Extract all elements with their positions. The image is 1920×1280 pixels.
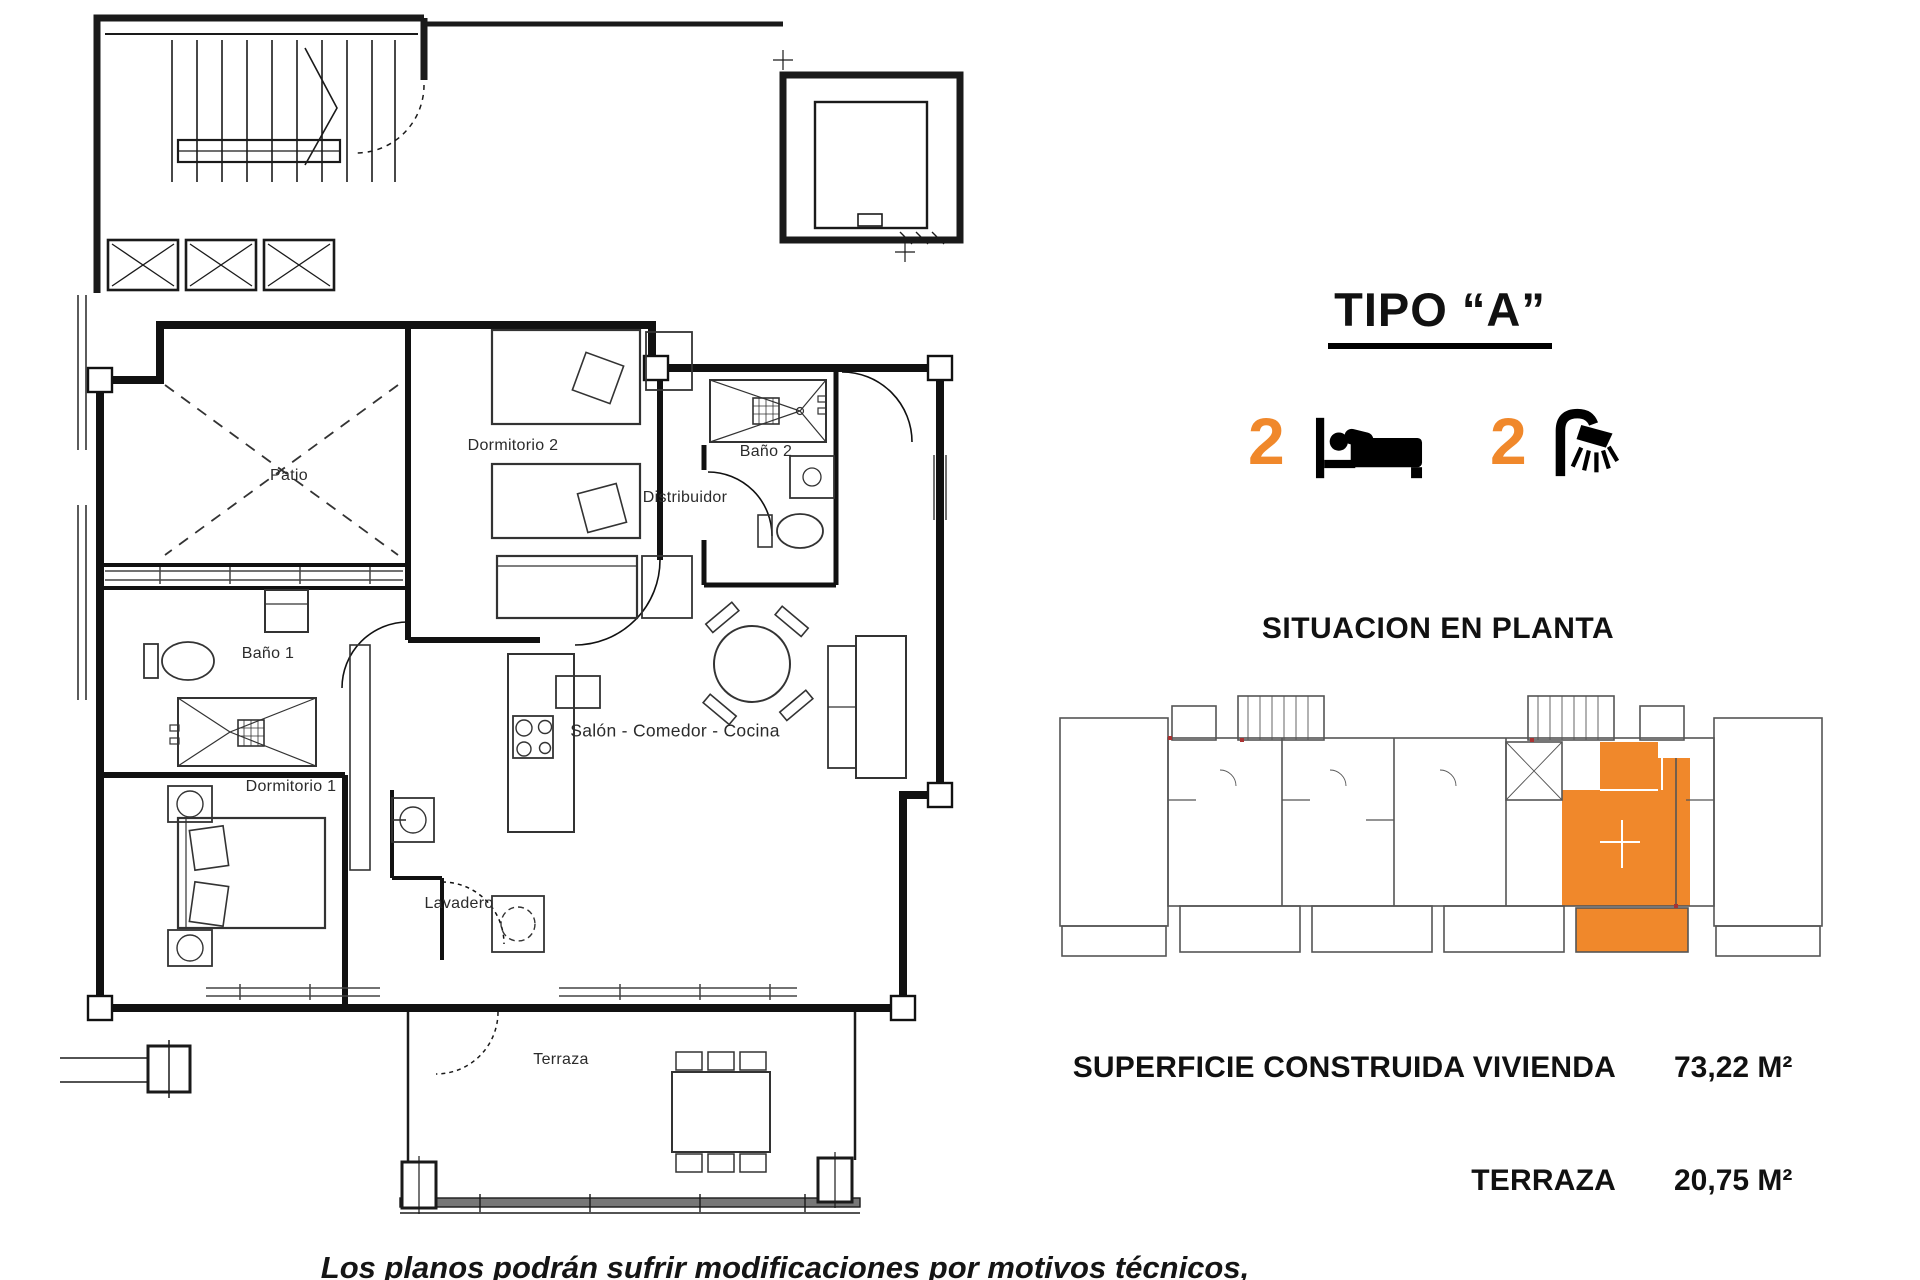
disclaimer-text: Los planos podrán sufrir modificaciones …	[285, 1250, 1285, 1280]
unit-type-title: TIPO “A”	[1328, 282, 1552, 349]
patio-group	[165, 385, 398, 632]
area-row-terraza-value: 20,75 M²	[1674, 1164, 1792, 1198]
shower-icon	[1552, 406, 1620, 478]
unit-type-title-wrap: TIPO “A”	[1280, 282, 1600, 349]
bedroom1-furniture-group	[168, 786, 325, 966]
area-row-terraza-label: TERRAZA	[1000, 1164, 1616, 1198]
room-label-bano1: Baño 1	[242, 645, 295, 663]
room-label-salon: Salón - Comedor - Cocina	[570, 721, 780, 742]
area-row-vivienda-value: 73,22 M²	[1674, 1051, 1792, 1085]
bathrooms-count: 2	[1490, 408, 1527, 474]
room-label-lavadero: Lavadero	[424, 895, 493, 913]
room-label-terraza: Terraza	[533, 1051, 588, 1069]
room-label-patio: Patio	[270, 467, 308, 485]
keyplan-highlighted-terrace	[1576, 908, 1688, 952]
room-label-distribuidor: Distribuidor	[643, 489, 728, 507]
area-row-vivienda-label: SUPERFICIE CONSTRUIDA VIVIENDA	[1000, 1051, 1616, 1085]
situacion-heading: SITUACION EN PLANTA	[1238, 612, 1638, 646]
terrace-group	[60, 1012, 860, 1214]
keyplan-group	[1060, 696, 1822, 956]
bedrooms-count: 2	[1248, 408, 1285, 474]
room-label-dormitorio2: Dormitorio 2	[468, 437, 559, 455]
elevator-group	[773, 50, 960, 262]
laundry-fixtures-group	[392, 798, 544, 952]
stairwell-group	[97, 18, 783, 293]
keyplan-highlighted-unit	[1562, 742, 1690, 906]
apartment-walls-group	[78, 295, 952, 1020]
bed-icon	[1310, 416, 1428, 480]
bathroom2-fixtures-group	[710, 380, 834, 548]
floorplan-sheet: Patio Dormitorio 2 Baño 2 Distribuidor B…	[0, 0, 1920, 1280]
room-label-dormitorio1: Dormitorio 1	[246, 778, 337, 796]
room-label-bano2: Baño 2	[740, 443, 793, 461]
